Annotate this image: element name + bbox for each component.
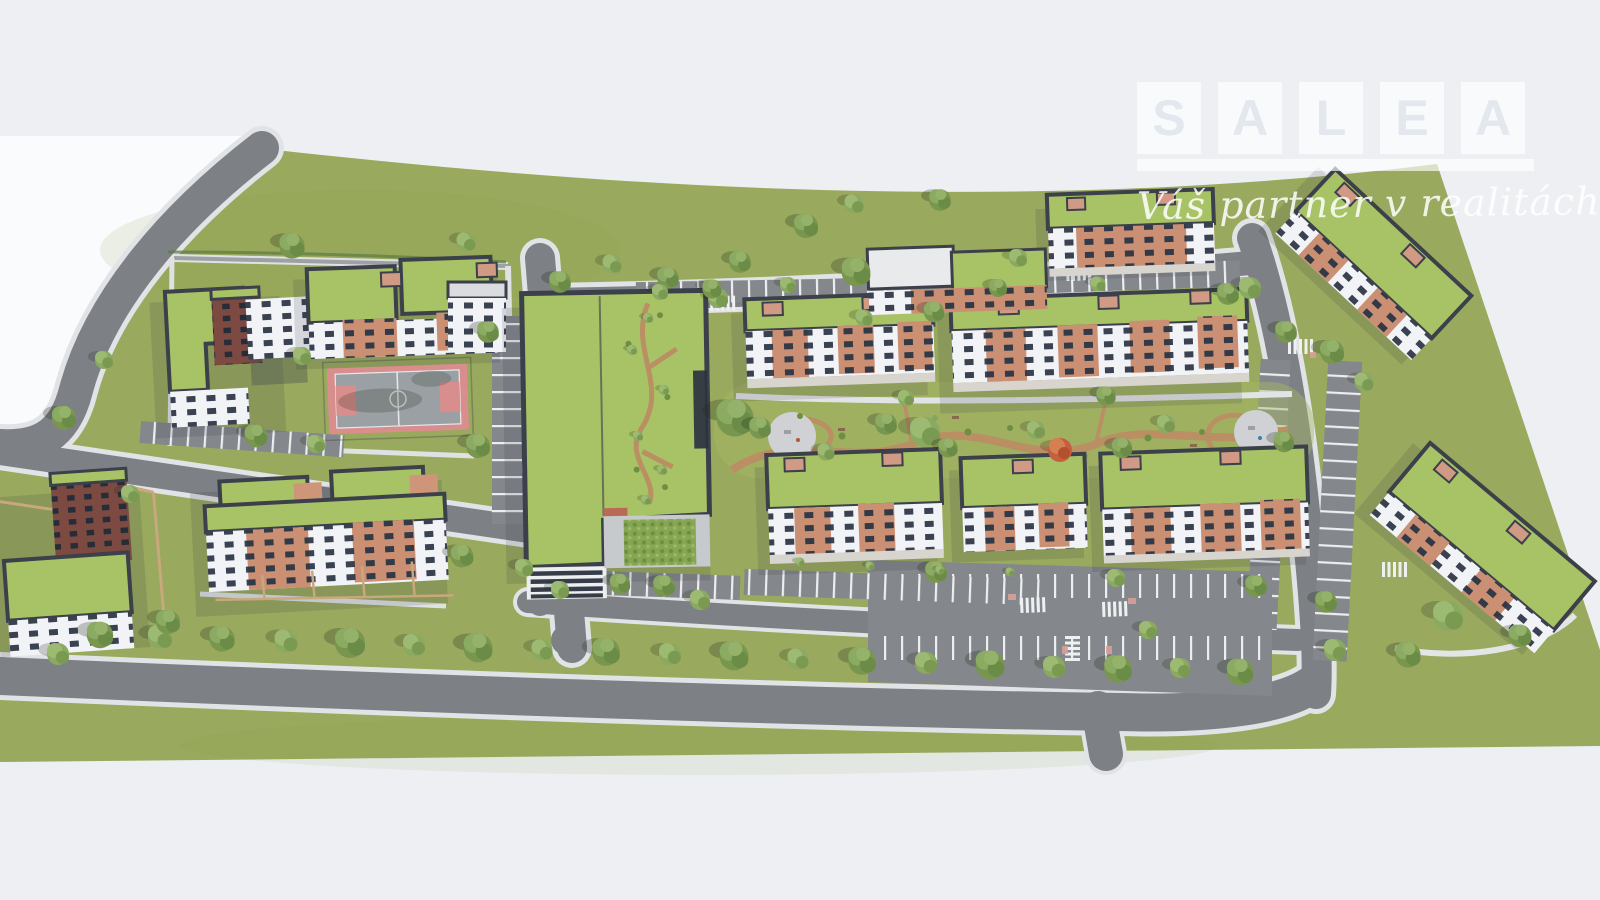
building-court-south-mid [949,454,1089,563]
site-plan-render [0,0,1600,900]
living-wall [624,519,697,566]
building-southwest-slab [189,466,454,617]
aerial-render-page: S A L E A Váš partner v realitách [0,0,1600,900]
basketball-court [323,357,474,440]
building-central-office [502,290,711,600]
building-court-south-west [754,449,944,575]
building-court-south-east [1088,446,1310,572]
building-top-north [1035,189,1216,281]
building-northwest-annex [448,282,506,352]
